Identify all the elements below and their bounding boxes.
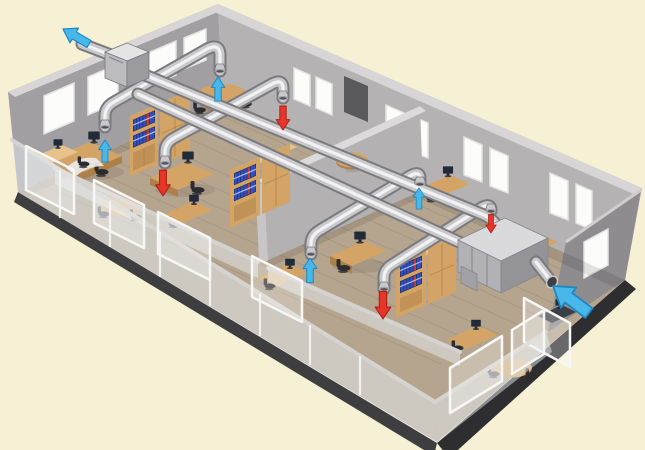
window (550, 173, 568, 220)
window (576, 184, 592, 230)
hvac-office-cutaway-illustration (0, 0, 645, 450)
air-vent (379, 282, 390, 291)
window (294, 68, 310, 106)
window (316, 77, 332, 115)
air-vent (278, 91, 289, 100)
air-vent (306, 247, 317, 256)
air-vent (486, 204, 497, 213)
exhaust-fan-box (105, 43, 149, 87)
window (464, 137, 482, 182)
air-vent (415, 177, 426, 186)
window (490, 148, 508, 193)
air-vent (100, 120, 111, 129)
air-vent (160, 156, 171, 165)
air-vent (215, 64, 226, 73)
